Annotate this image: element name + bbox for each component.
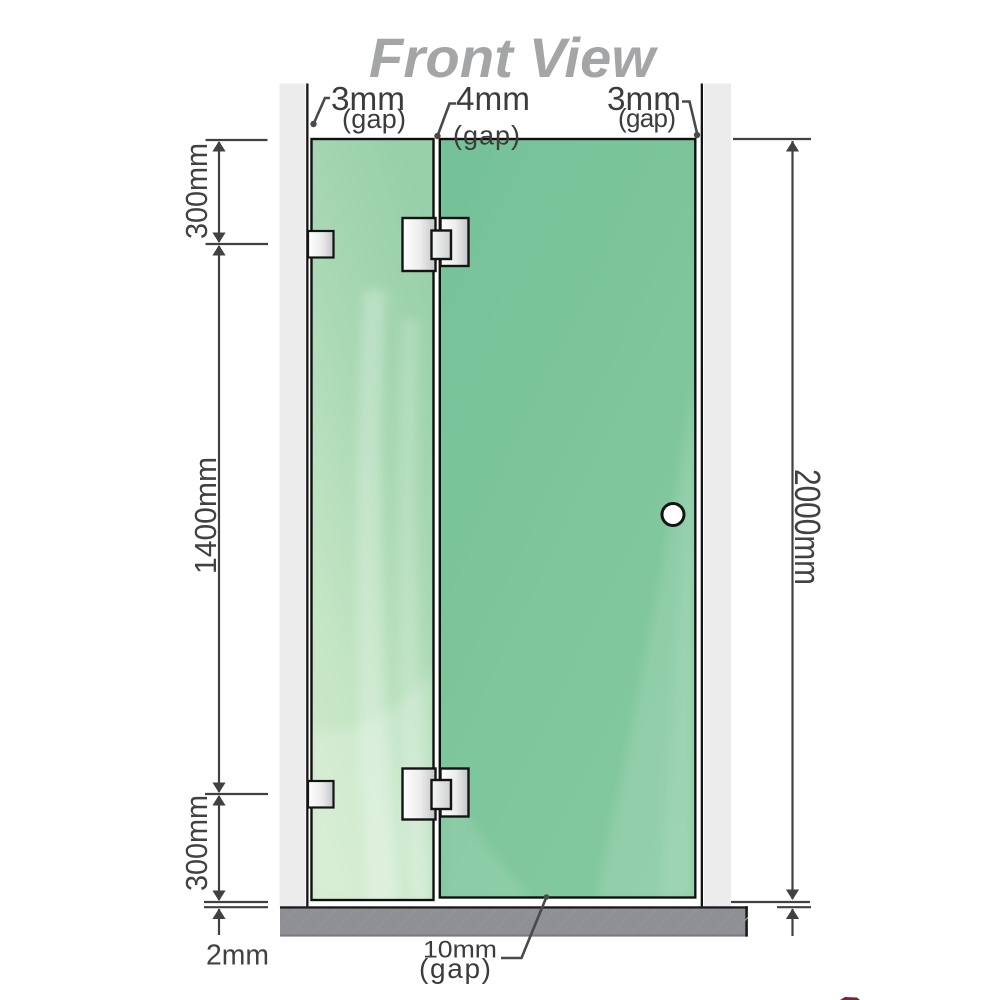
svg-text:300mm: 300mm — [179, 143, 214, 239]
svg-text:(gap): (gap) — [618, 103, 676, 133]
svg-text:2000mm: 2000mm — [787, 469, 828, 585]
svg-text:(gap): (gap) — [453, 121, 520, 151]
svg-text:300mm: 300mm — [179, 795, 214, 891]
svg-text:4mm: 4mm — [456, 80, 530, 117]
svg-text:(gap): (gap) — [342, 104, 406, 134]
svg-text:1400mm: 1400mm — [188, 457, 223, 574]
svg-text:2mm: 2mm — [206, 940, 269, 972]
